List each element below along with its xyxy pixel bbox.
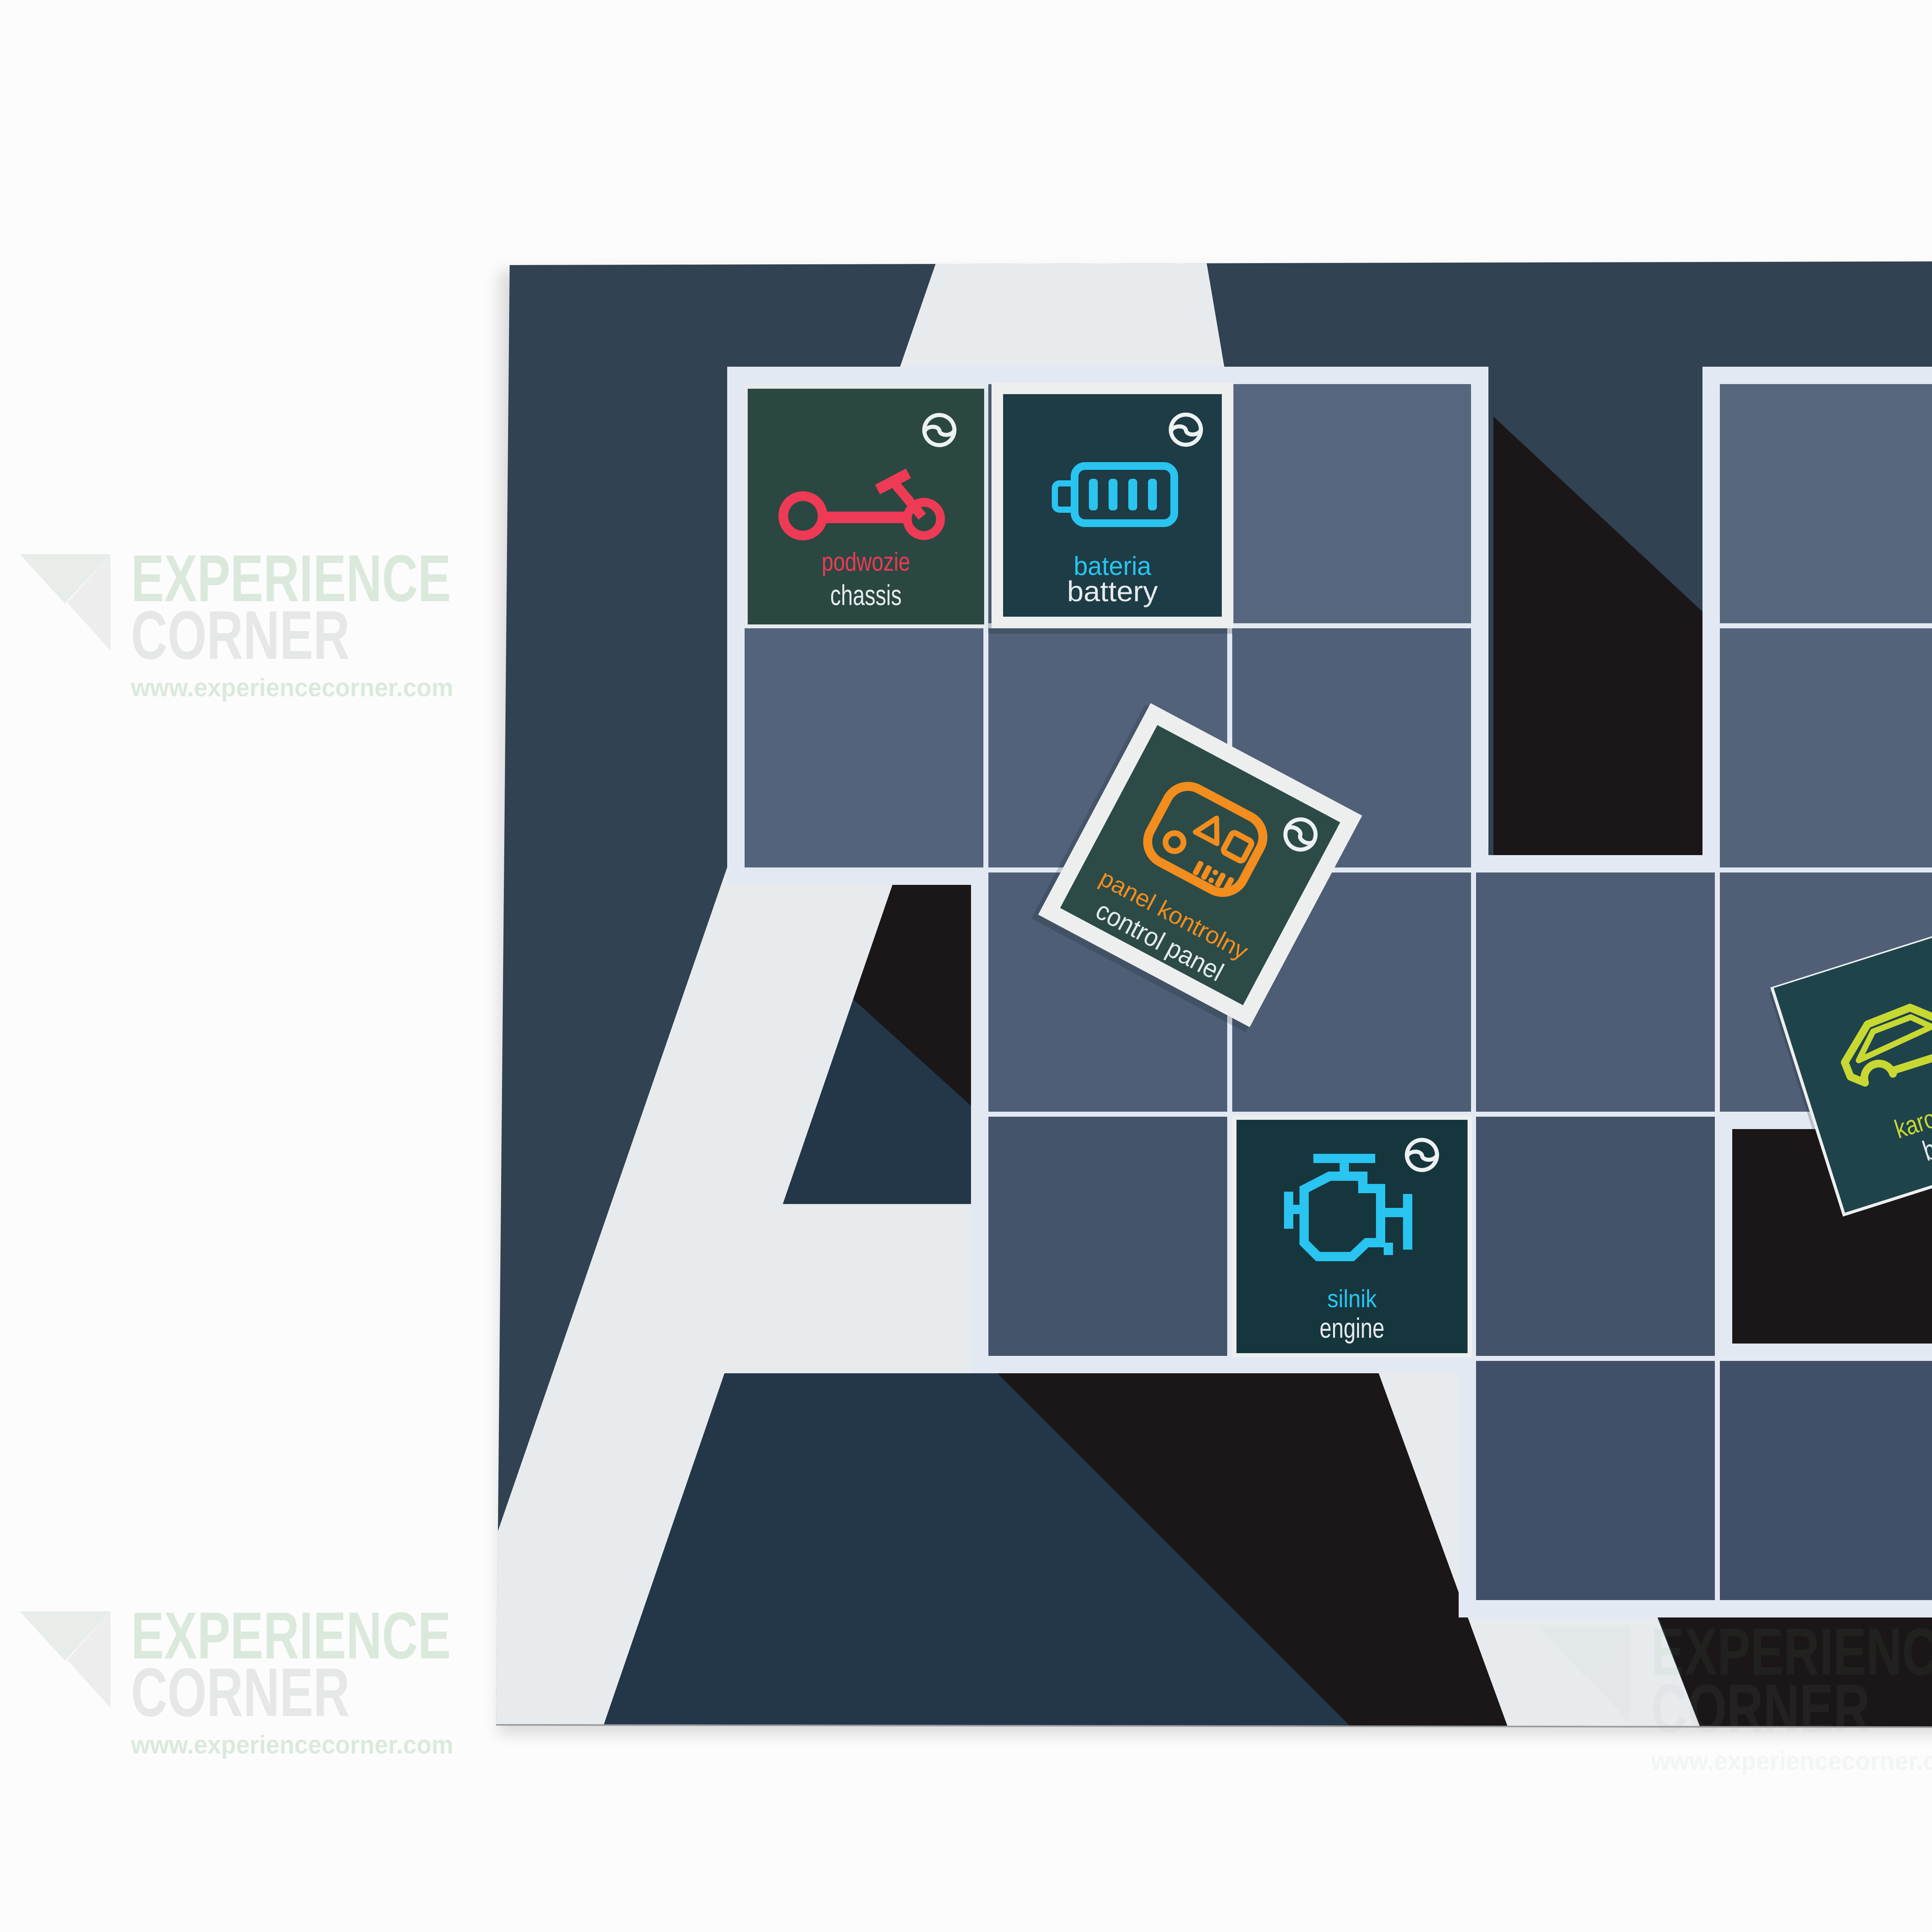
svg-text:www.experiencecorner.com: www.experiencecorner.com [131,673,453,702]
svg-text:www.experiencecorner.com: www.experiencecorner.com [1651,1747,1932,1775]
svg-text:www.experiencecorner.com: www.experiencecorner.com [131,1730,453,1759]
svg-text:CORNER: CORNER [131,597,350,673]
svg-text:engine: engine [1320,1313,1384,1344]
svg-text:battery: battery [1067,575,1158,607]
svg-text:chassis: chassis [830,579,902,611]
svg-text:CORNER: CORNER [131,1654,350,1731]
svg-text:podwozie: podwozie [822,547,910,577]
svg-text:CORNER: CORNER [1651,1670,1870,1747]
svg-text:silnik: silnik [1327,1285,1377,1313]
